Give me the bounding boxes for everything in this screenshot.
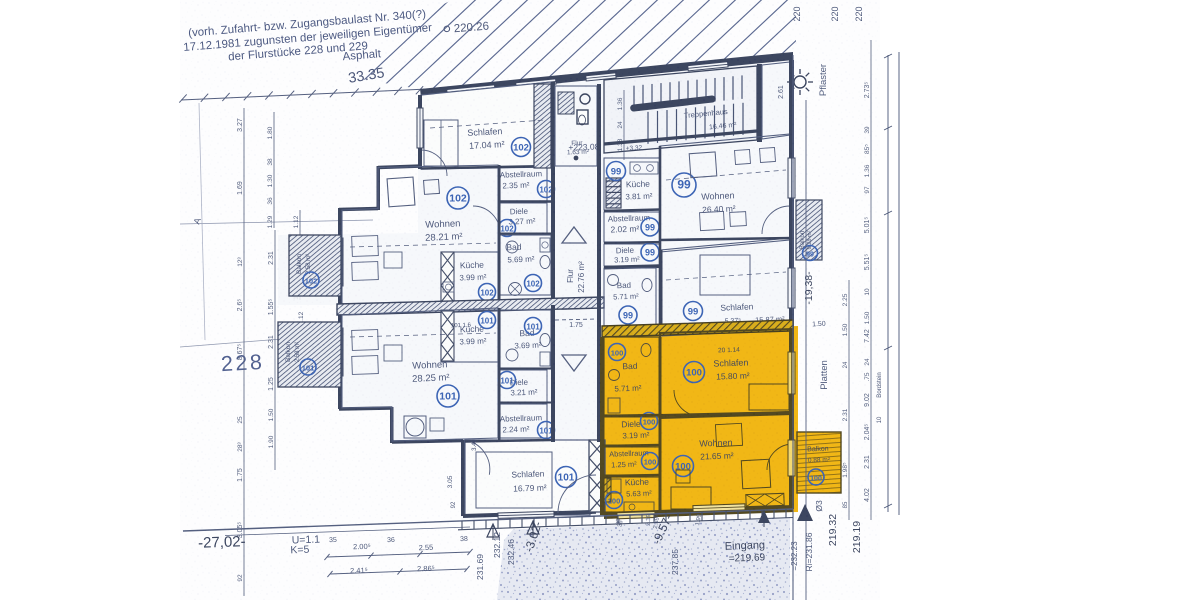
svg-text:3.49: 3.49 xyxy=(472,439,478,451)
svg-text:101 1.6: 101 1.6 xyxy=(451,323,472,330)
